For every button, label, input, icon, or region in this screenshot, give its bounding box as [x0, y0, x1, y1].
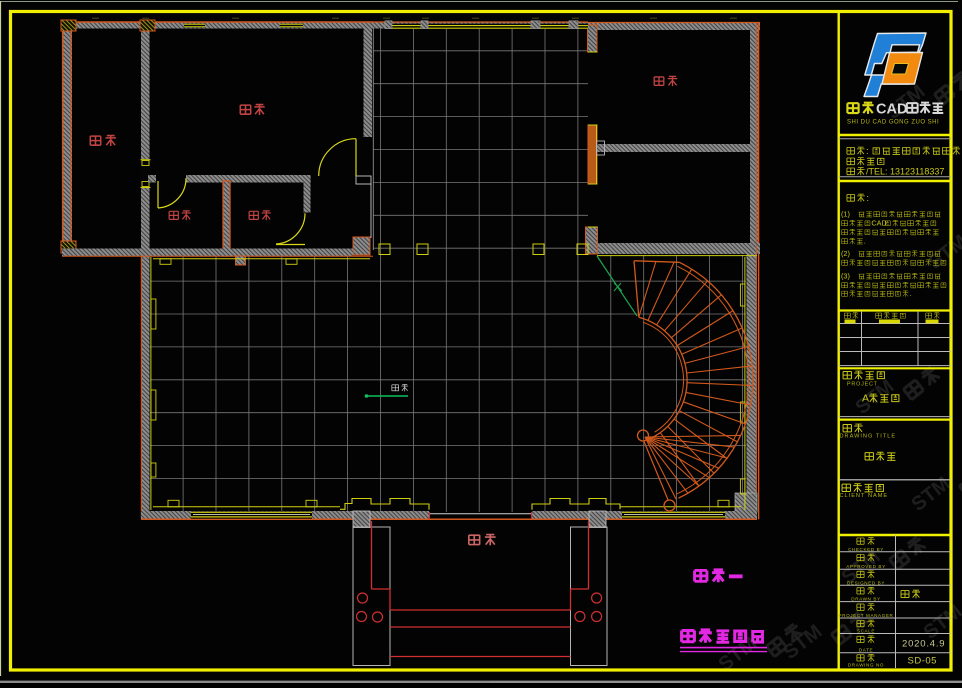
svg-text:CAD: CAD: [871, 219, 886, 228]
svg-text:.: .: [864, 237, 866, 246]
svg-text:(2): (2): [841, 249, 850, 258]
svg-text:2020.4.9: 2020.4.9: [902, 639, 945, 650]
svg-text:APPROVED BY: APPROVED BY: [846, 564, 886, 569]
svg-text:CHECKED BY: CHECKED BY: [848, 547, 884, 552]
svg-text:SHI DU CAD GONG ZUO SHI: SHI DU CAD GONG ZUO SHI: [847, 120, 939, 126]
svg-text::: :: [866, 146, 869, 157]
svg-text::: :: [866, 193, 869, 204]
svg-text:A: A: [862, 392, 869, 404]
svg-text:SD-05: SD-05: [908, 656, 937, 667]
svg-text:DRAWING NO: DRAWING NO: [848, 663, 884, 668]
svg-text:PROJECT MANAGER: PROJECT MANAGER: [839, 613, 894, 618]
svg-text:(1): (1): [841, 210, 850, 219]
svg-text:DRAWN BY: DRAWN BY: [851, 597, 880, 602]
svg-text:CAD: CAD: [876, 102, 907, 118]
svg-text:(3): (3): [841, 272, 850, 281]
svg-text:/TEL: 13123118337: /TEL: 13123118337: [866, 166, 944, 176]
svg-text:DRAWING TITLE: DRAWING TITLE: [840, 433, 897, 439]
svg-text:.: .: [909, 289, 911, 298]
svg-text:PROJECT: PROJECT: [847, 382, 878, 388]
svg-text:DESIGNED BY: DESIGNED BY: [847, 580, 885, 585]
svg-text:DATE: DATE: [859, 648, 873, 653]
svg-text:CLIENT NAME: CLIENT NAME: [840, 493, 889, 499]
svg-text:SCALE: SCALE: [857, 629, 875, 634]
